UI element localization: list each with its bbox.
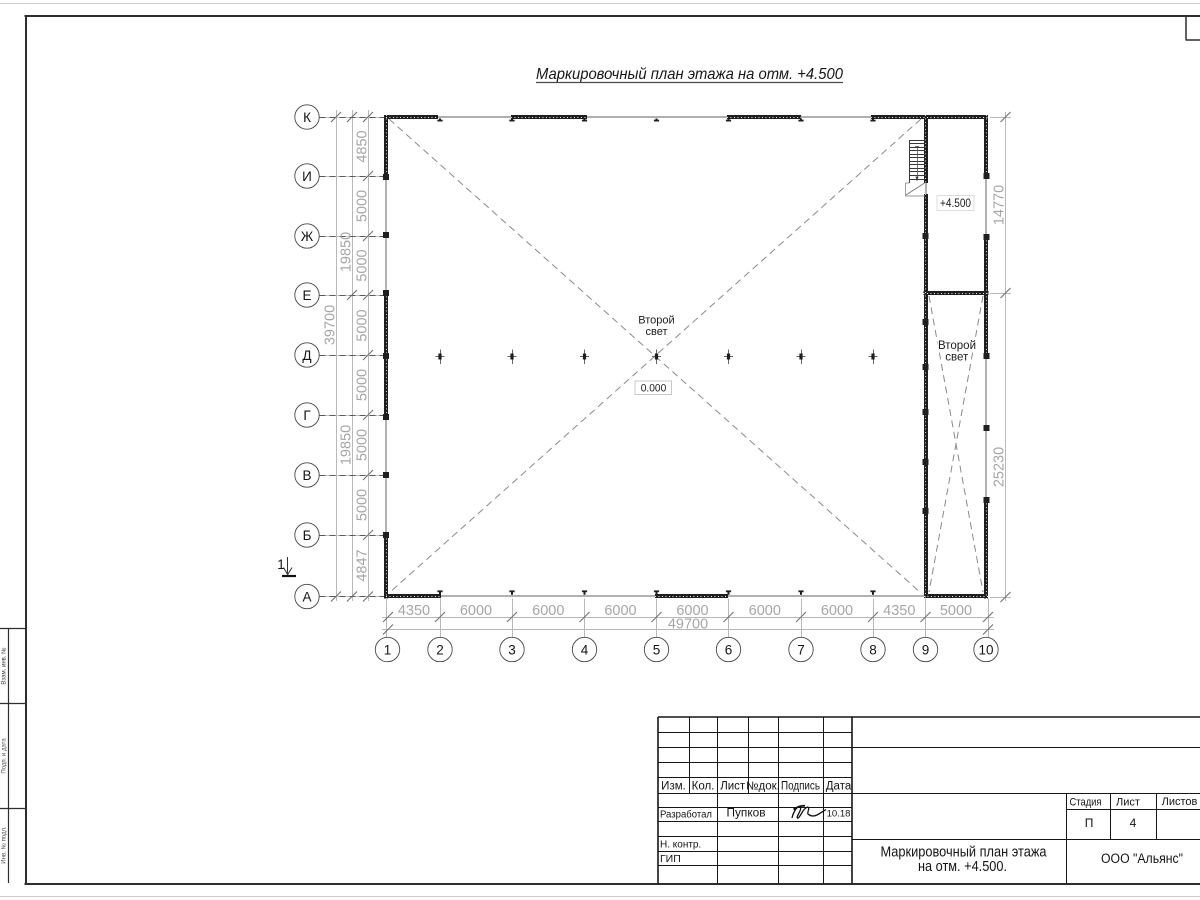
svg-text:10: 10: [978, 642, 993, 657]
svg-text:6000: 6000: [749, 603, 781, 619]
svg-text:4: 4: [1130, 816, 1137, 830]
svg-text:П: П: [1085, 816, 1094, 830]
svg-text:А: А: [302, 589, 311, 604]
svg-text:+4.500: +4.500: [940, 198, 971, 210]
svg-text:ООО "Альянс": ООО "Альянс": [1101, 851, 1183, 866]
svg-text:5000: 5000: [355, 489, 371, 521]
svg-text:Инв. № подл.: Инв. № подл.: [1, 826, 8, 864]
svg-text:7: 7: [797, 642, 805, 657]
svg-text:свет: свет: [945, 352, 969, 364]
svg-text:3: 3: [508, 642, 516, 657]
svg-text:39700: 39700: [322, 305, 338, 345]
svg-text:8: 8: [869, 642, 877, 657]
svg-text:Кол.: Кол.: [692, 781, 715, 793]
svg-text:5000: 5000: [355, 190, 371, 222]
svg-text:6000: 6000: [604, 603, 636, 619]
svg-text:4350: 4350: [883, 603, 915, 619]
svg-text:Разработал: Разработал: [660, 809, 712, 821]
svg-text:4847: 4847: [355, 549, 371, 581]
svg-text:Лист: Лист: [720, 781, 746, 793]
svg-text:Ж: Ж: [301, 229, 314, 244]
svg-text:Н. контр.: Н. контр.: [660, 840, 701, 851]
svg-text:9: 9: [922, 642, 930, 657]
svg-text:19850: 19850: [339, 425, 355, 465]
svg-text:6000: 6000: [532, 603, 564, 619]
svg-text:2: 2: [436, 642, 444, 657]
svg-text:Маркировочный план этажа на от: Маркировочный план этажа на отм. +4.500: [536, 66, 843, 83]
svg-text:Б: Б: [303, 528, 312, 543]
svg-text:Лист: Лист: [1116, 797, 1140, 809]
svg-text:К: К: [303, 110, 311, 125]
svg-text:14770: 14770: [992, 185, 1008, 225]
svg-text:5000: 5000: [355, 309, 371, 341]
svg-text:№док.: №док.: [746, 781, 780, 793]
svg-text:Стадия: Стадия: [1070, 797, 1102, 809]
svg-text:1: 1: [277, 557, 285, 572]
svg-text:25230: 25230: [992, 447, 1008, 487]
svg-text:6000: 6000: [460, 603, 492, 619]
svg-text:Дата: Дата: [826, 781, 852, 793]
svg-text:Второй: Второй: [938, 340, 976, 352]
svg-text:6: 6: [725, 642, 733, 657]
svg-text:49700: 49700: [668, 617, 708, 633]
svg-text:свет: свет: [645, 326, 667, 338]
svg-text:на отм. +4.500.: на отм. +4.500.: [918, 859, 1007, 875]
svg-text:0.000: 0.000: [641, 383, 667, 395]
svg-text:Взам. инв. №: Взам. инв. №: [1, 647, 8, 684]
svg-text:4: 4: [581, 642, 589, 657]
svg-text:Е: Е: [302, 288, 311, 303]
svg-text:Второй: Второй: [638, 315, 674, 327]
svg-text:6000: 6000: [821, 603, 853, 619]
svg-text:1: 1: [384, 642, 392, 657]
svg-text:5000: 5000: [355, 249, 371, 281]
svg-text:Пупков: Пупков: [727, 808, 766, 820]
svg-text:Подп. и дата: Подп. и дата: [2, 738, 8, 774]
svg-text:Листов: Листов: [1162, 796, 1198, 808]
svg-text:Изм.: Изм.: [661, 781, 686, 793]
svg-text:4350: 4350: [398, 603, 430, 619]
svg-text:10.18: 10.18: [827, 809, 851, 820]
svg-text:Д: Д: [302, 348, 311, 363]
svg-text:19850: 19850: [339, 232, 355, 272]
svg-text:Г: Г: [303, 408, 311, 423]
svg-text:5000: 5000: [940, 603, 972, 619]
svg-text:ГИП: ГИП: [660, 853, 681, 865]
svg-text:5000: 5000: [355, 429, 371, 461]
svg-text:В: В: [302, 468, 311, 483]
svg-text:Подпись: Подпись: [781, 781, 820, 793]
svg-text:4850: 4850: [355, 130, 371, 162]
svg-text:5: 5: [653, 642, 661, 657]
svg-text:5000: 5000: [355, 369, 371, 401]
svg-text:И: И: [302, 169, 312, 184]
